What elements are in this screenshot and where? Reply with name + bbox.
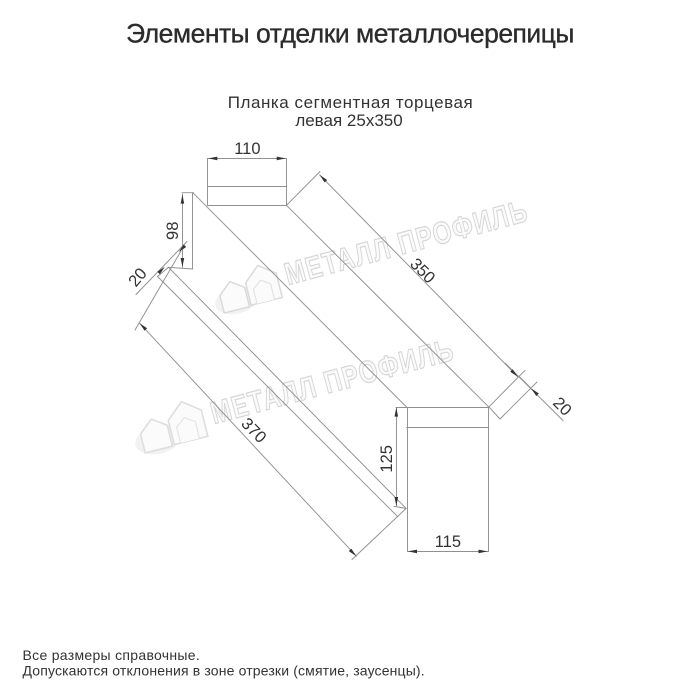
svg-text:115: 115 <box>435 533 461 551</box>
svg-text:левая 25х350: левая 25х350 <box>295 111 402 130</box>
svg-text:Планка сегментная торцевая: Планка сегментная торцевая <box>228 93 474 112</box>
svg-text:Элементы отделки металлочерепи: Элементы отделки металлочерепицы <box>126 19 574 49</box>
svg-text:110: 110 <box>234 140 260 158</box>
svg-text:125: 125 <box>378 445 396 473</box>
svg-text:Допускаются отклонения в зоне: Допускаются отклонения в зоне отрезки (с… <box>23 663 425 679</box>
svg-text:98: 98 <box>164 222 182 240</box>
svg-text:Все размеры справочные.: Все размеры справочные. <box>23 647 201 663</box>
